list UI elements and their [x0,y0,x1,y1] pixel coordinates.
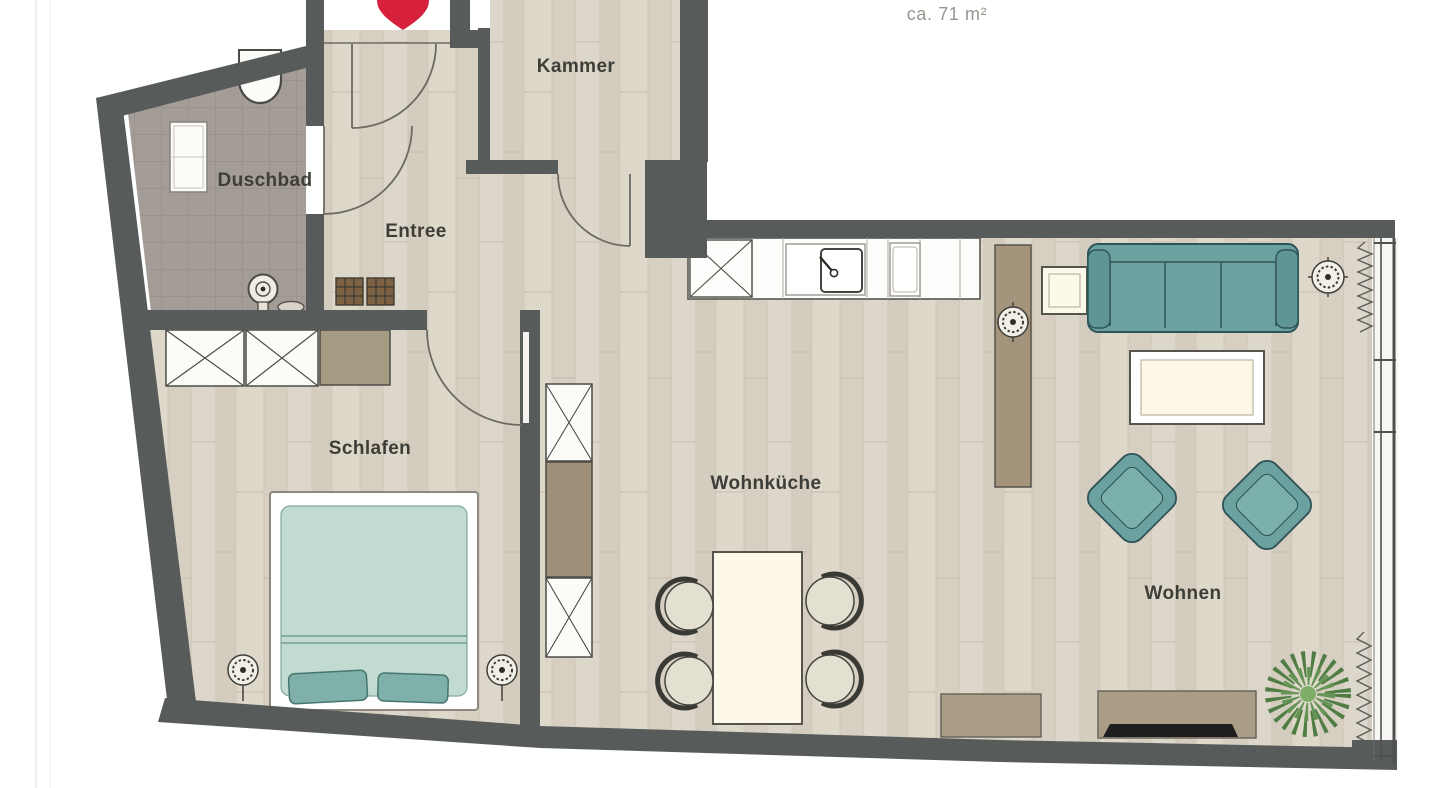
dining-chair-1 [658,579,713,633]
bed [270,492,478,710]
label-schlafen: Schlafen [329,438,411,459]
wall-entree-bedroom [130,310,427,330]
pillow-right [378,673,449,703]
wall-bath-entree-lower [306,214,324,312]
label-wohnen: Wohnen [1145,583,1222,604]
wardrobe-closed [320,330,390,385]
dining-chair-4 [806,652,861,706]
doormat-grid-left [336,278,363,305]
wardrobe-x-1 [166,330,244,386]
dining-table [713,552,802,724]
label-duschbad: Duschbad [217,170,312,191]
side-table [1042,267,1087,314]
mattress [281,506,467,696]
wall-kammer-bottom [466,160,558,174]
entrance-marker-icon [377,0,429,30]
kammer-floor [490,0,680,174]
wardrobe-x-2 [246,330,318,386]
pillow-left [288,670,367,704]
kitchen-sink [786,244,865,295]
label-kammer: Kammer [537,56,616,77]
doormat-grid-right [367,278,394,305]
label-wohnkueche: Wohnküche [711,473,822,494]
sofa [1088,244,1298,332]
tv-sideboard [1098,691,1256,738]
label-entree: Entree [385,221,447,242]
sideboard-small [941,694,1041,737]
wall-corner-bottom-right [1352,740,1397,768]
tall-unit-closed [546,462,592,577]
shower-tray [170,122,207,192]
tall-unit-x-bottom [546,578,592,657]
wall-column-kammer-door [645,160,707,258]
wall-kammer-left [478,28,490,162]
wall-top-living [645,220,1395,238]
floor-plan-page: ca. 71 m² Kammer Duschbad Entree Schlafe… [0,0,1440,788]
coffee-table [1130,351,1264,424]
shelf-sideboard [995,245,1031,487]
wall-entry-recess-left [306,0,324,126]
tall-unit-x-top [546,384,592,461]
wall-kammer-right [680,0,708,162]
tv [1103,724,1238,737]
document-edge-lines [36,0,50,788]
dining-chair-3 [806,574,861,628]
cooktop [890,243,920,296]
label-area: ca. 71 m² [907,4,987,24]
faucet-icon [830,269,837,276]
dining-chair-2 [658,654,713,708]
floor-plan: ca. 71 m² Kammer Duschbad Entree Schlafe… [0,0,1440,788]
